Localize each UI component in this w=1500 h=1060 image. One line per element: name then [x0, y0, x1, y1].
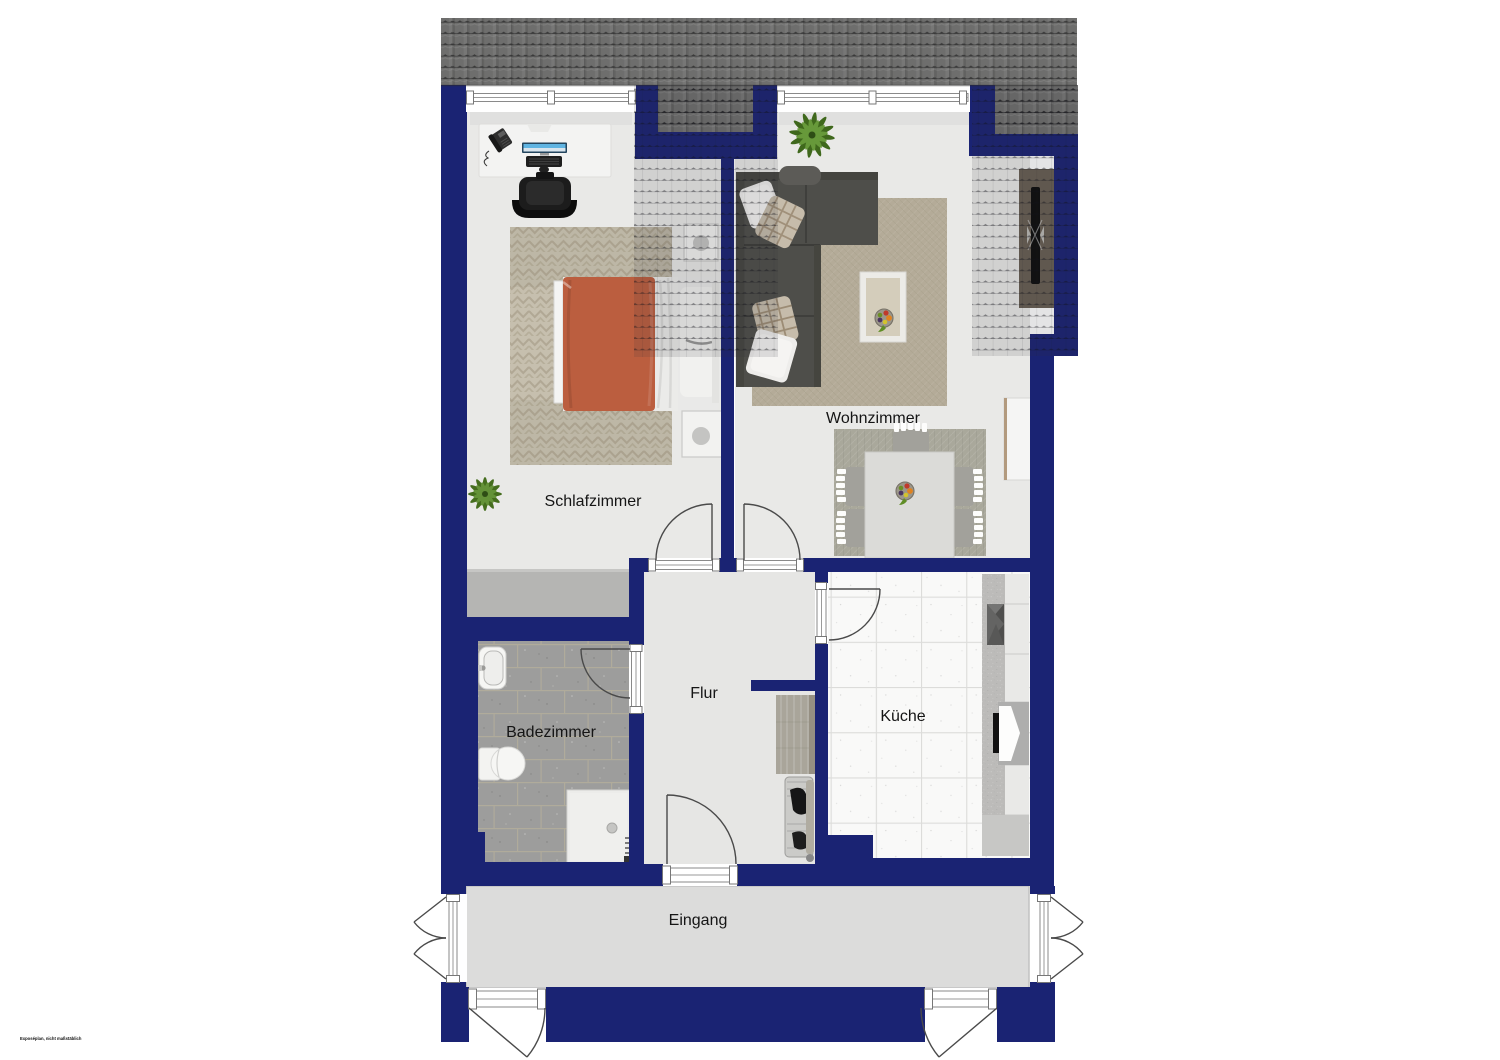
svg-text:Badezimmer: Badezimmer [506, 724, 596, 741]
svg-text:Exposéplan, nicht maßstäblich: Exposéplan, nicht maßstäblich [20, 1036, 82, 1041]
svg-text:Schlafzimmer: Schlafzimmer [545, 493, 643, 510]
svg-text:Eingang: Eingang [669, 912, 728, 929]
svg-text:Wohnzimmer: Wohnzimmer [826, 410, 921, 427]
svg-text:Flur: Flur [690, 685, 718, 702]
svg-text:Küche: Küche [880, 708, 925, 725]
